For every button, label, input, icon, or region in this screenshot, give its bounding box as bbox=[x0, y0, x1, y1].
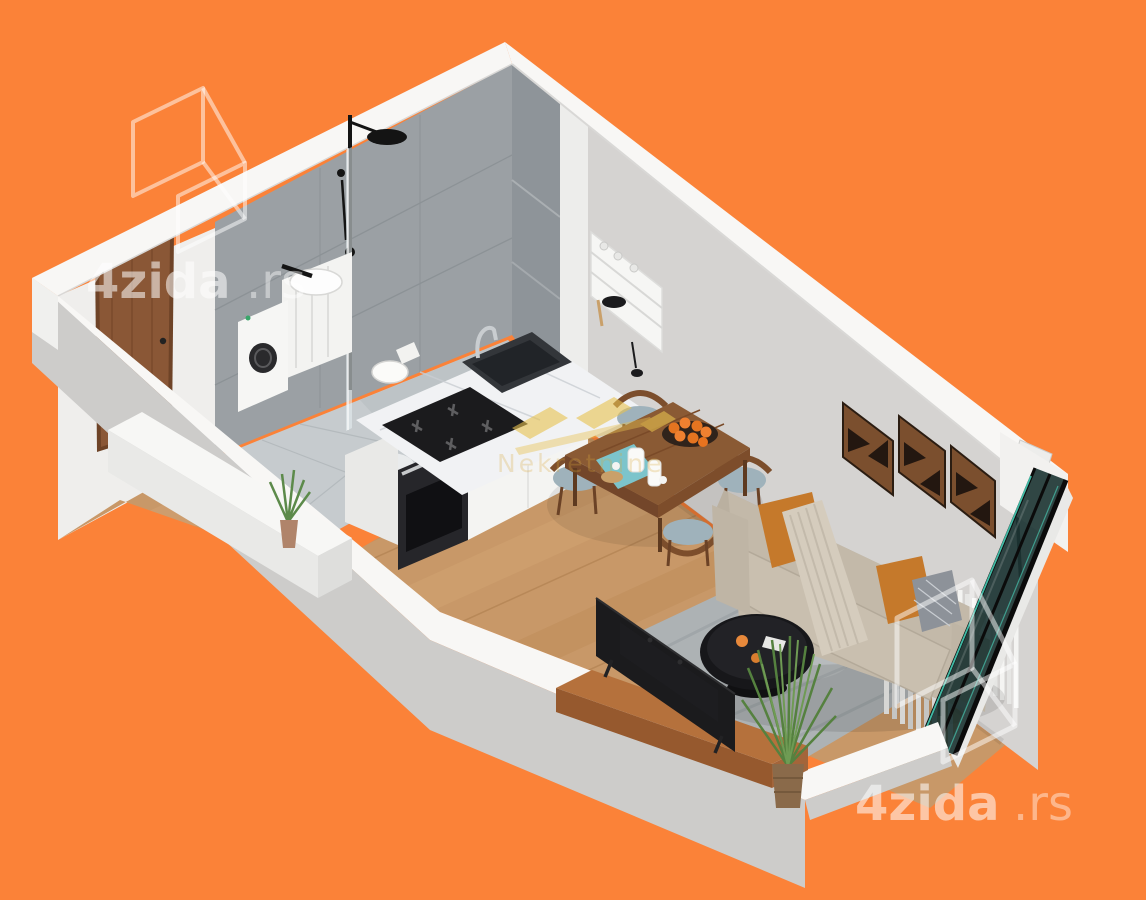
washer-indicator bbox=[246, 316, 251, 321]
jar bbox=[600, 242, 608, 250]
tangerine bbox=[692, 421, 703, 432]
tangerine bbox=[701, 427, 712, 438]
agency-watermark-text: Nekretnine bbox=[497, 449, 665, 478]
isometric-scene: 4zida .rs Nekretnine 4zida .rs bbox=[0, 0, 1146, 900]
floor-plan-render: 4zida .rs Nekretnine 4zida .rs bbox=[0, 0, 1146, 900]
watermark-text-suffix: .rs bbox=[1013, 776, 1073, 832]
jar bbox=[614, 252, 622, 260]
tv-mount-hole bbox=[648, 638, 653, 643]
tangerine bbox=[688, 433, 699, 444]
rain-shower-head bbox=[367, 129, 407, 145]
tangerine bbox=[675, 431, 686, 442]
candle bbox=[736, 635, 748, 647]
chair-leg bbox=[706, 540, 708, 566]
toilet-bowl bbox=[372, 361, 408, 383]
jar bbox=[630, 264, 638, 272]
hanging-pan bbox=[602, 296, 626, 308]
washer-door bbox=[249, 343, 277, 373]
tangerine bbox=[698, 437, 708, 447]
hanging-ladle bbox=[631, 369, 643, 377]
chair-leg bbox=[594, 486, 596, 514]
coffee-table-surface bbox=[707, 616, 807, 680]
door-handle bbox=[160, 338, 166, 344]
tv-mount-hole bbox=[678, 660, 683, 665]
watermark-text-main: 4zida bbox=[855, 776, 1000, 832]
tangerine bbox=[680, 418, 691, 429]
watermark-text-suffix: .rs bbox=[246, 254, 306, 310]
plant-pot bbox=[280, 520, 298, 548]
chair-leg bbox=[668, 540, 670, 566]
sofa-armrest-left bbox=[712, 505, 750, 615]
plant-pot-woven bbox=[772, 764, 804, 808]
watermark-text-main: 4zida bbox=[86, 254, 231, 310]
hand-shower-head bbox=[337, 169, 345, 177]
